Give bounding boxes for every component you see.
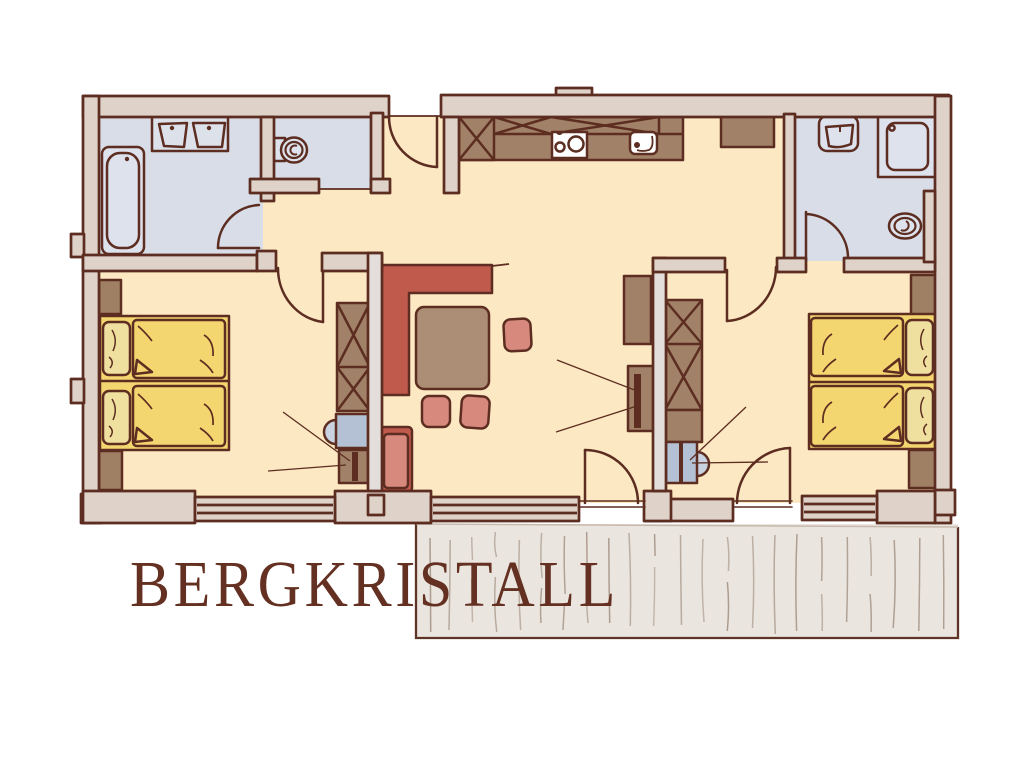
svg-text:BERGKRISTALL: BERGKRISTALL	[130, 548, 619, 621]
